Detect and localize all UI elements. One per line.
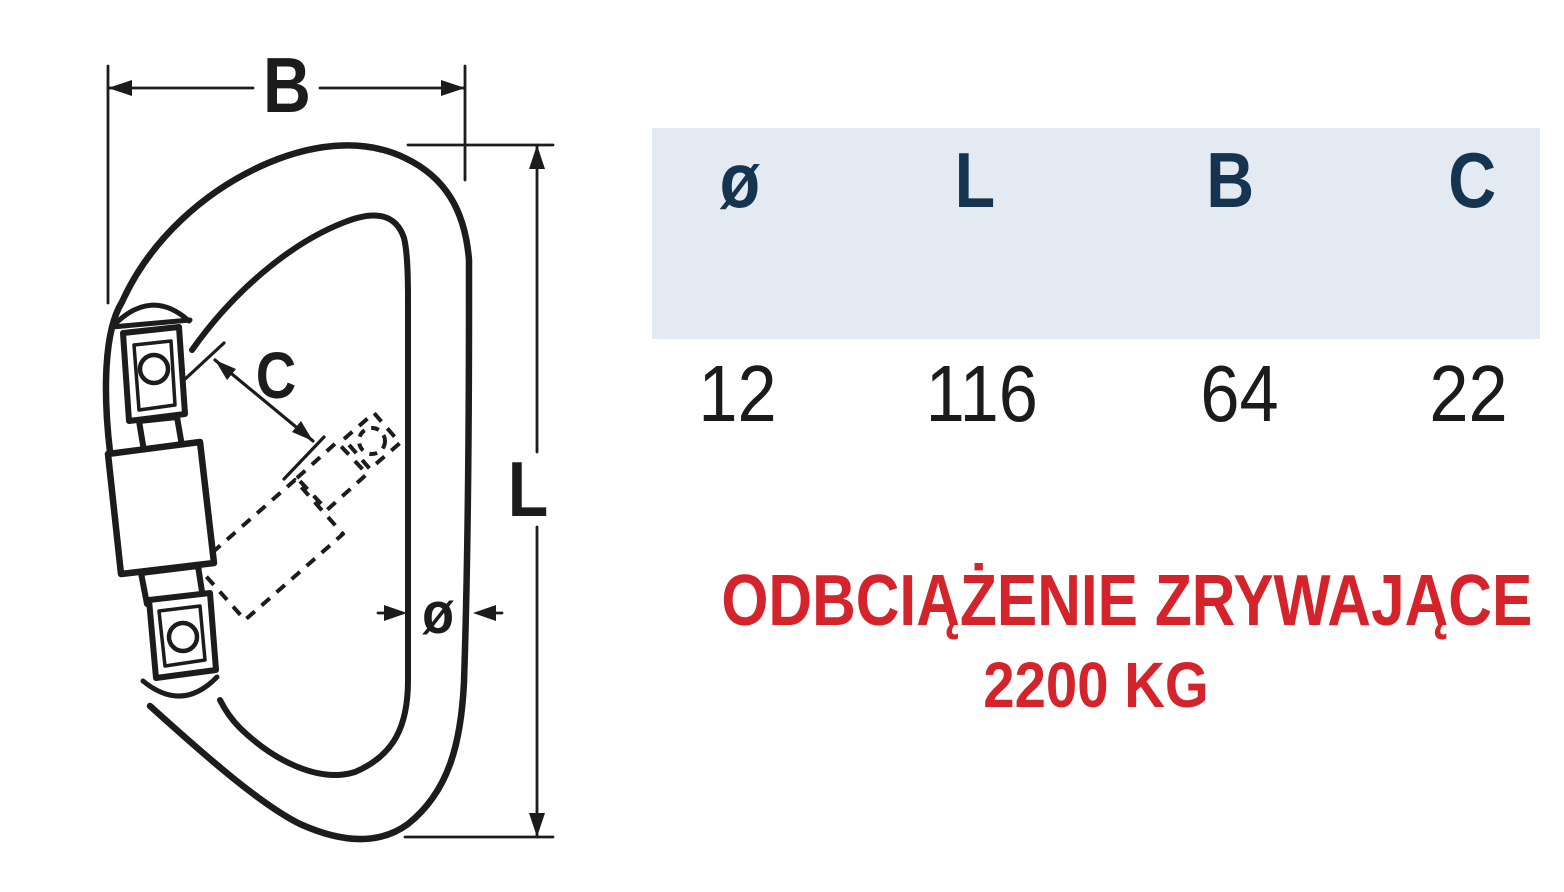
locking-sleeve bbox=[108, 442, 214, 574]
column-header-C: C bbox=[1352, 140, 1564, 220]
column-header-diameter: ø bbox=[620, 140, 860, 220]
spec-sheet: B L C ø ø L B C 12 116 64 22 ODBCIĄŻENIE… bbox=[0, 0, 1564, 892]
column-header-L: L bbox=[855, 140, 1095, 220]
value-diameter: 12 bbox=[617, 352, 857, 436]
breaking-load-title: ODBCIĄŻENIE ZRYWAJĄCE bbox=[721, 558, 1470, 644]
label-L: L bbox=[508, 446, 549, 533]
breaking-load-banner: ODBCIĄŻENIE ZRYWAJĄCE 2200 KG bbox=[650, 558, 1542, 722]
gate-open-phantom bbox=[197, 413, 400, 620]
label-C: C bbox=[256, 339, 297, 412]
bottom-rivet-pin bbox=[169, 623, 197, 651]
label-B: B bbox=[263, 42, 311, 129]
top-rivet-pin bbox=[140, 355, 168, 383]
breaking-load-value: 2200 KG bbox=[704, 648, 1489, 722]
screw-lock-gate bbox=[108, 327, 216, 678]
column-header-B: B bbox=[1110, 140, 1350, 220]
carabiner-technical-drawing: B L C ø bbox=[0, 0, 640, 892]
value-B: 64 bbox=[1119, 352, 1359, 436]
value-C: 22 bbox=[1348, 352, 1564, 436]
label-diameter: ø bbox=[422, 580, 454, 645]
value-L: 116 bbox=[862, 352, 1102, 436]
